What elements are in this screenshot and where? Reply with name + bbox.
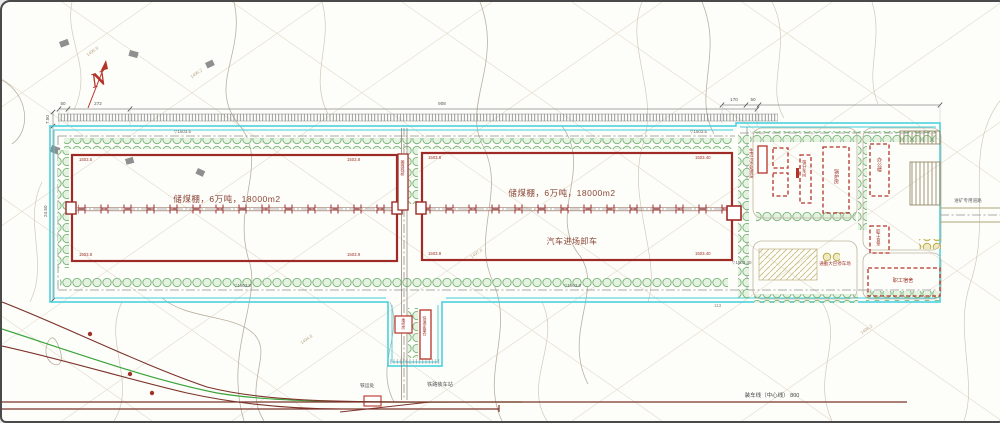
pergola-structures xyxy=(900,131,940,205)
spot-elevation: 1503.8 xyxy=(428,252,441,256)
conveyor-gallery-label: 输煤栈桥 xyxy=(401,160,405,176)
spot-elevation: 1503.8 xyxy=(428,156,441,160)
rail-station-label: 铁路装车站 xyxy=(427,383,453,388)
fence-strip xyxy=(58,114,778,121)
road-elevation: 1503.8 xyxy=(564,284,581,288)
dimension-text: 272 xyxy=(94,102,102,107)
rail-office-label: 铁运处 xyxy=(360,385,374,390)
dormitory-label: 职工宿舍 xyxy=(893,279,914,284)
dimension-text: 24.50 xyxy=(44,206,49,218)
dimension-text: 113 xyxy=(714,304,721,309)
left-shed-label: 储煤棚，6万吨，18000m2 xyxy=(173,195,280,204)
office-building-label: 办公楼 xyxy=(876,157,881,172)
road-elevation: 1503.40 xyxy=(732,261,751,265)
spot-elevation: 1503.5 xyxy=(79,158,92,162)
dimension-text: 7.50 xyxy=(46,115,51,124)
spot-elevation: 1503.8 xyxy=(79,253,92,257)
rail-line-title: 装车线（中心线） 800 xyxy=(745,394,800,400)
road-elevation: 1503.5 xyxy=(690,130,707,134)
canteen-label: 职工食堂 xyxy=(876,229,880,246)
right-shed-label: 储煤棚，6万吨，18000m2 xyxy=(508,189,615,198)
road-elevation: 1503.8 xyxy=(234,284,251,288)
dimension-text: 50 xyxy=(750,98,755,103)
left-shed xyxy=(66,155,402,261)
dimension-text: 908 xyxy=(438,102,446,107)
truck-unloading-note: 汽车进场卸车 xyxy=(547,238,598,246)
rock-symbols xyxy=(50,39,215,177)
tree-rows xyxy=(58,131,941,358)
spot-elevation: 1503.9 xyxy=(347,253,360,257)
spot-elevation: 1503.40 xyxy=(695,252,711,256)
dimension-text: 50 xyxy=(60,102,65,107)
sewage-station xyxy=(758,146,799,178)
road-elevation: 1503.5 xyxy=(174,130,191,134)
weighbridge-label: 地磅房 xyxy=(401,318,405,329)
parking-label: 通勤大巴停车场 xyxy=(819,262,851,267)
exit-road-label: 进矿专用道路 xyxy=(954,199,982,204)
dimension-text: 170 xyxy=(730,98,738,103)
screening-plant-label: 筛分车间 xyxy=(802,160,806,177)
plan-linework xyxy=(2,2,1000,421)
parking-area xyxy=(759,249,817,280)
spot-elevation: 1503.40 xyxy=(695,156,711,160)
sewage-station-label: 生活污水处理站 xyxy=(749,148,753,178)
site-plan-drawing: N 储煤棚，6万吨，18000m2 储煤棚，6万吨，18000m2 汽车进场卸车… xyxy=(0,0,1000,423)
loading-bunker-label: 快速定量仓 xyxy=(423,316,427,336)
spot-elevation: 1503.8 xyxy=(347,158,360,162)
boiler-room-label: 锅炉房 xyxy=(833,169,838,184)
